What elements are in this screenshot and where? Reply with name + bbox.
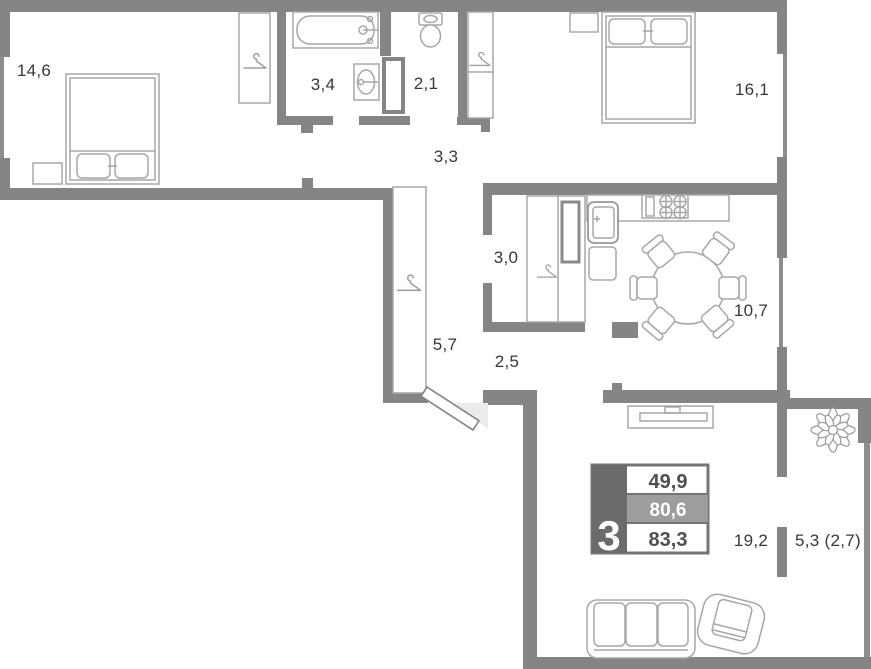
room-label-wardrobe: 5,7 [433, 335, 458, 354]
plant-icon [811, 408, 855, 452]
wall-segment [359, 116, 410, 125]
wall-segment [777, 347, 787, 477]
chair [630, 276, 657, 300]
room-label-hall: 3,0 [494, 248, 519, 267]
duct-shaft [384, 59, 403, 112]
floor-plan-page: 3 49,9 80,6 83,3 14,6 3,4 2,1 16,1 3,3 3… [0, 0, 871, 669]
wall-segment [777, 12, 787, 54]
stat-total-area: 83,3 [649, 529, 688, 551]
wall-segment [777, 195, 787, 258]
wall-segment [483, 183, 492, 235]
wall-segment [858, 398, 871, 443]
bedroom1-furniture [33, 13, 270, 184]
wall-segment [0, 0, 10, 57]
wall-segment [777, 527, 787, 577]
armchair [695, 591, 768, 656]
room-label-bedroom1: 14,6 [17, 61, 51, 80]
nightstand [33, 163, 62, 184]
toilet-bowl [421, 25, 441, 47]
bedroom2-furniture [468, 12, 695, 123]
wall-segment [603, 390, 790, 403]
room-label-entry: 2,5 [495, 352, 520, 371]
wall-segment [483, 322, 585, 332]
room-label-wc: 2,1 [414, 74, 439, 93]
corridor-wardrobe [393, 187, 426, 393]
room-label-bedroom2: 16,1 [735, 80, 769, 99]
wall-segment [612, 383, 622, 390]
closet-mirror [562, 202, 579, 262]
pillow [609, 19, 645, 44]
wall-segment [523, 405, 537, 669]
wall-segment [0, 188, 393, 200]
entrance-door [421, 387, 488, 430]
room-label-kitchen: 10,7 [734, 301, 768, 320]
wall-segment [483, 390, 537, 405]
room-label-living: 19,2 [734, 531, 768, 550]
wall-segment [383, 195, 393, 392]
wall-segment [458, 0, 467, 123]
room-label-balcony: 5,3 (2,7) [795, 531, 861, 550]
window [783, 54, 787, 157]
window [779, 258, 783, 347]
pillow [115, 154, 148, 178]
wall-segment [380, 12, 391, 56]
fridge [589, 247, 616, 280]
wall-segment [277, 116, 333, 125]
kitchen-furniture [587, 195, 746, 341]
wall-segment [483, 183, 785, 195]
stat-rooms-count: 3 [597, 512, 620, 559]
wall-segment [302, 178, 313, 188]
wc-furniture [419, 13, 442, 47]
wall-segment [301, 125, 313, 133]
pillow [77, 154, 110, 178]
window [864, 443, 870, 657]
wall-segment [0, 0, 787, 12]
wall-segment [612, 322, 638, 338]
wall-segment [481, 117, 490, 132]
nightstand [570, 13, 598, 32]
room-label-bathroom: 3,4 [311, 75, 336, 94]
pillow [651, 19, 687, 44]
hall-closet [527, 196, 585, 322]
chair [719, 276, 746, 300]
stats-box: 3 49,9 80,6 83,3 [592, 465, 708, 559]
wall-segment [523, 657, 871, 669]
wall-segment [277, 12, 286, 116]
floor-plan: 3 49,9 80,6 83,3 14,6 3,4 2,1 16,1 3,3 3… [0, 0, 871, 669]
cutting-board [646, 197, 654, 216]
stat-area-wo-balcony: 80,6 [650, 500, 687, 521]
window [0, 57, 4, 158]
room-label-corridor: 3,3 [434, 147, 459, 166]
stat-living-area: 49,9 [649, 471, 688, 493]
